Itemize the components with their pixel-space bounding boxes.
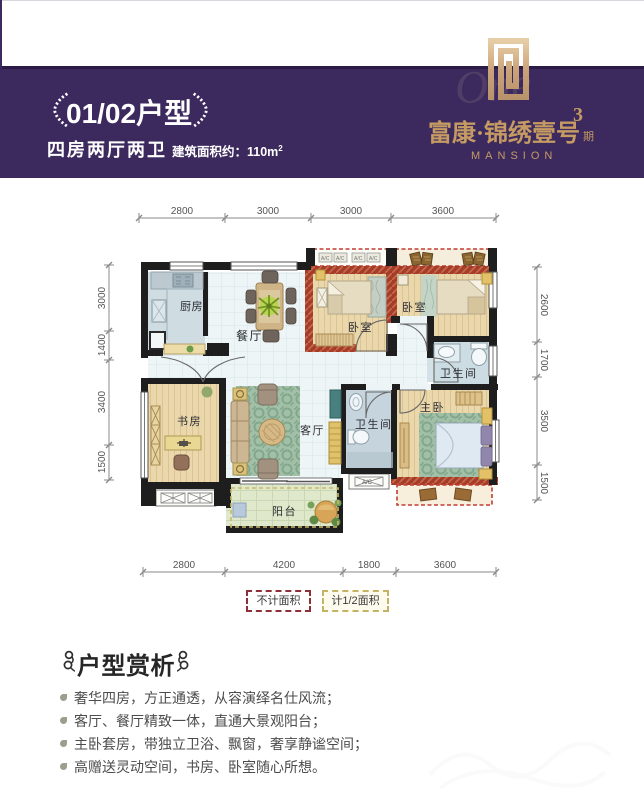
svg-text:客厅: 客厅 bbox=[300, 423, 325, 437]
svg-text:A/C: A/C bbox=[362, 480, 373, 486]
svg-text:1500: 1500 bbox=[538, 472, 549, 495]
svg-text:阳台: 阳台 bbox=[272, 504, 297, 518]
svg-text:A/C: A/C bbox=[369, 256, 378, 262]
svg-text:1500: 1500 bbox=[97, 450, 108, 473]
svg-text:A/C: A/C bbox=[321, 256, 330, 262]
svg-text:卫生间: 卫生间 bbox=[440, 366, 478, 380]
svg-text:卧室: 卧室 bbox=[348, 320, 373, 334]
svg-text:4200: 4200 bbox=[273, 560, 296, 571]
svg-text:1800: 1800 bbox=[358, 560, 381, 571]
svg-text:3500: 3500 bbox=[538, 410, 549, 433]
svg-text:3000: 3000 bbox=[340, 206, 363, 217]
svg-text:1700: 1700 bbox=[538, 349, 549, 372]
svg-text:2800: 2800 bbox=[171, 206, 194, 217]
svg-text:2800: 2800 bbox=[173, 560, 196, 571]
svg-text:卫生间: 卫生间 bbox=[355, 417, 393, 431]
svg-text:书房: 书房 bbox=[177, 415, 202, 428]
svg-text:3000: 3000 bbox=[257, 206, 280, 217]
svg-text:卧室: 卧室 bbox=[402, 300, 427, 314]
svg-text:厨房: 厨房 bbox=[180, 300, 203, 313]
svg-text:A/C: A/C bbox=[354, 256, 363, 262]
svg-text:餐厅: 餐厅 bbox=[236, 328, 263, 343]
svg-text:3600: 3600 bbox=[434, 560, 457, 571]
svg-text:A/C: A/C bbox=[336, 256, 345, 262]
svg-text:2600: 2600 bbox=[538, 294, 549, 317]
svg-text:3600: 3600 bbox=[432, 206, 455, 217]
svg-text:1400: 1400 bbox=[97, 333, 108, 356]
svg-text:3000: 3000 bbox=[97, 286, 108, 309]
svg-text:3400: 3400 bbox=[97, 390, 108, 413]
svg-text:主卧: 主卧 bbox=[420, 401, 445, 414]
